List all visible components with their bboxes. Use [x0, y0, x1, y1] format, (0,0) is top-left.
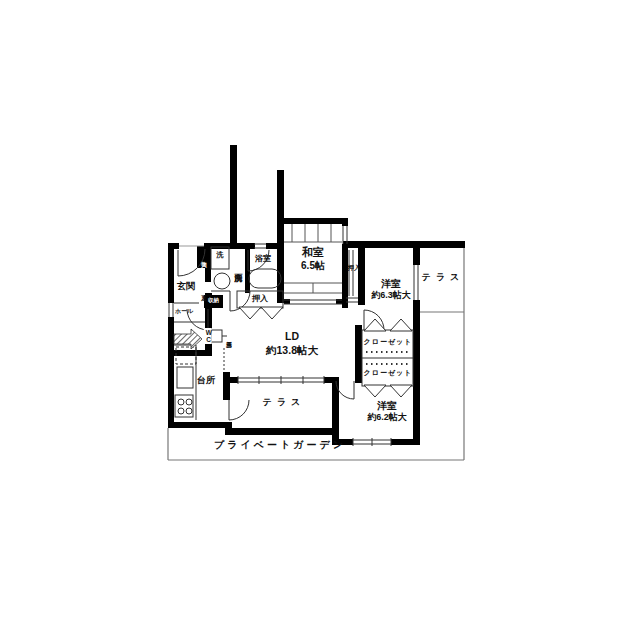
room-label-youshitsu-se: 洋室 約6.2帖大: [367, 399, 407, 424]
room-label-ld: LD 約13.8帖大: [266, 330, 318, 357]
room-name: LD: [266, 330, 318, 344]
room-label-closet-upper: クローゼット: [364, 337, 413, 346]
room-label-hall: ホール: [175, 308, 193, 316]
room-size: 約6.2帖大: [367, 412, 407, 424]
room-label-terrace-east: テラス: [422, 272, 465, 284]
room-label-youshitsu-ne: 洋室 約6.3帖大: [371, 277, 411, 302]
room-label-oshiire-right: 押入: [348, 264, 361, 272]
room-label-wc: WC: [204, 328, 212, 344]
entry-arrow-icon: [174, 329, 202, 349]
room-name: 洋室: [367, 399, 407, 412]
room-label-genkan: 玄関: [177, 281, 195, 293]
room-label-terrace-south: テラス: [263, 397, 306, 409]
room-label-oshiire-center: 押入: [252, 294, 268, 304]
room-size: 約13.8帖大: [266, 344, 318, 358]
floorplan-graphics: [0, 0, 640, 640]
floor-plan: 和室 6.5帖 洋室 約6.3帖大 洋室 約6.2帖大 LD 約13.8帖大 テ…: [0, 0, 640, 640]
room-name: 洋室: [371, 277, 411, 290]
room-label-private-garden: プライベートガーデン: [214, 438, 346, 451]
room-size: 約6.3帖大: [371, 290, 411, 302]
room-label-washer: 洗: [217, 250, 224, 259]
room-label-bath: 浴室: [255, 254, 271, 264]
room-label-washitsu: 和室 6.5帖: [301, 245, 325, 272]
room-size: 6.5帖: [301, 260, 325, 273]
room-label-kitchen: 台所: [197, 375, 215, 387]
storage-label-shunou: 収納: [208, 297, 219, 304]
room-label-closet-lower: クローゼット: [364, 368, 413, 377]
room-name: 和室: [301, 245, 325, 259]
